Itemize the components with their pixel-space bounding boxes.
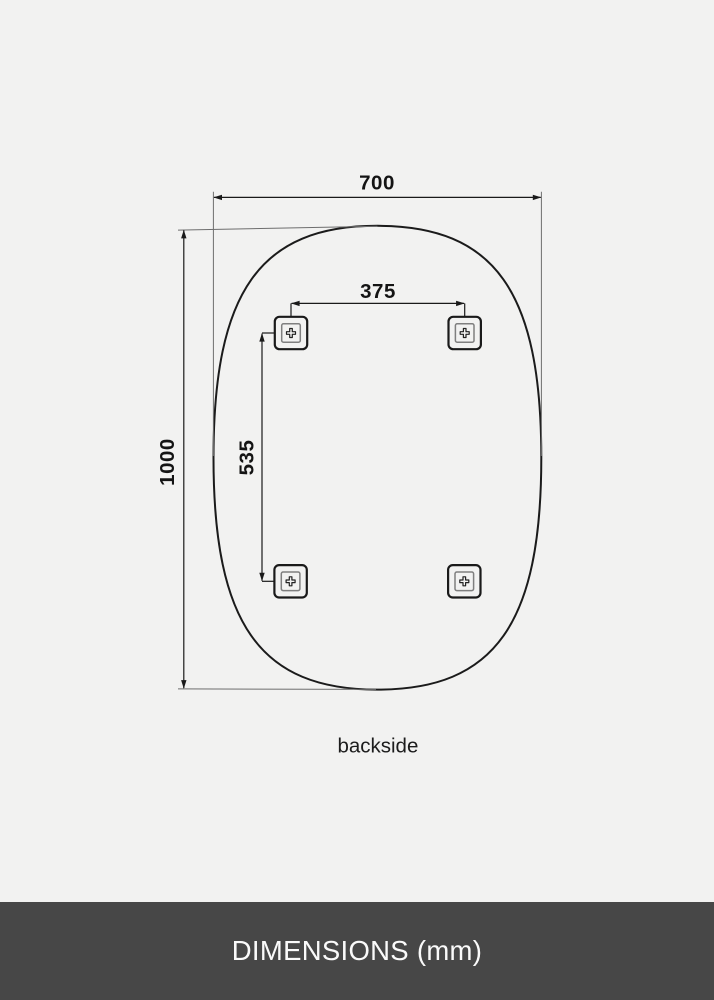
svg-text:1000: 1000 [156,438,179,486]
svg-text:535: 535 [235,440,258,476]
svg-text:backside: backside [337,735,418,758]
svg-text:700: 700 [359,172,395,195]
svg-text:375: 375 [360,280,396,303]
